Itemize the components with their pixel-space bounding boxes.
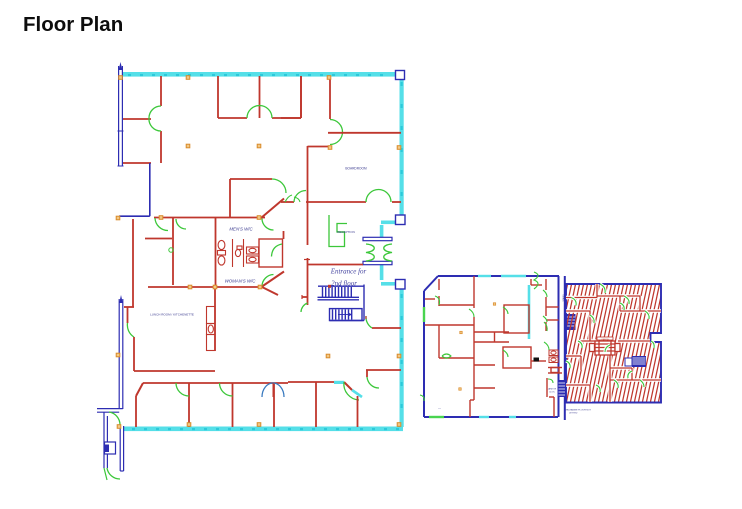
svg-text:Floor Plan: Floor Plan — [23, 13, 123, 36]
svg-text:BOARDROOM: BOARDROOM — [345, 167, 367, 171]
svg-text:LUNCH ROOM / KITCHENETTE: LUNCH ROOM / KITCHENETTE — [150, 313, 194, 317]
svg-text:MEZZANINE FLOOR NOT: MEZZANINE FLOOR NOT — [565, 409, 592, 412]
svg-text:RECEPTION: RECEPTION — [337, 230, 355, 234]
svg-text:LETTED: LETTED — [569, 413, 578, 415]
svg-text:STAIRS: STAIRS — [562, 294, 565, 302]
svg-text:OFFICE: OFFICE — [601, 339, 609, 341]
svg-text:JANITOR: JANITOR — [548, 388, 557, 391]
svg-text:MEN'S W/C: MEN'S W/C — [229, 227, 253, 232]
svg-text:WOMAN'S W/C: WOMAN'S W/C — [225, 279, 257, 284]
svg-text:—: — — [438, 407, 441, 411]
svg-text:CLOS.: CLOS. — [549, 391, 555, 393]
svg-text:Entrance for: Entrance for — [330, 268, 367, 276]
